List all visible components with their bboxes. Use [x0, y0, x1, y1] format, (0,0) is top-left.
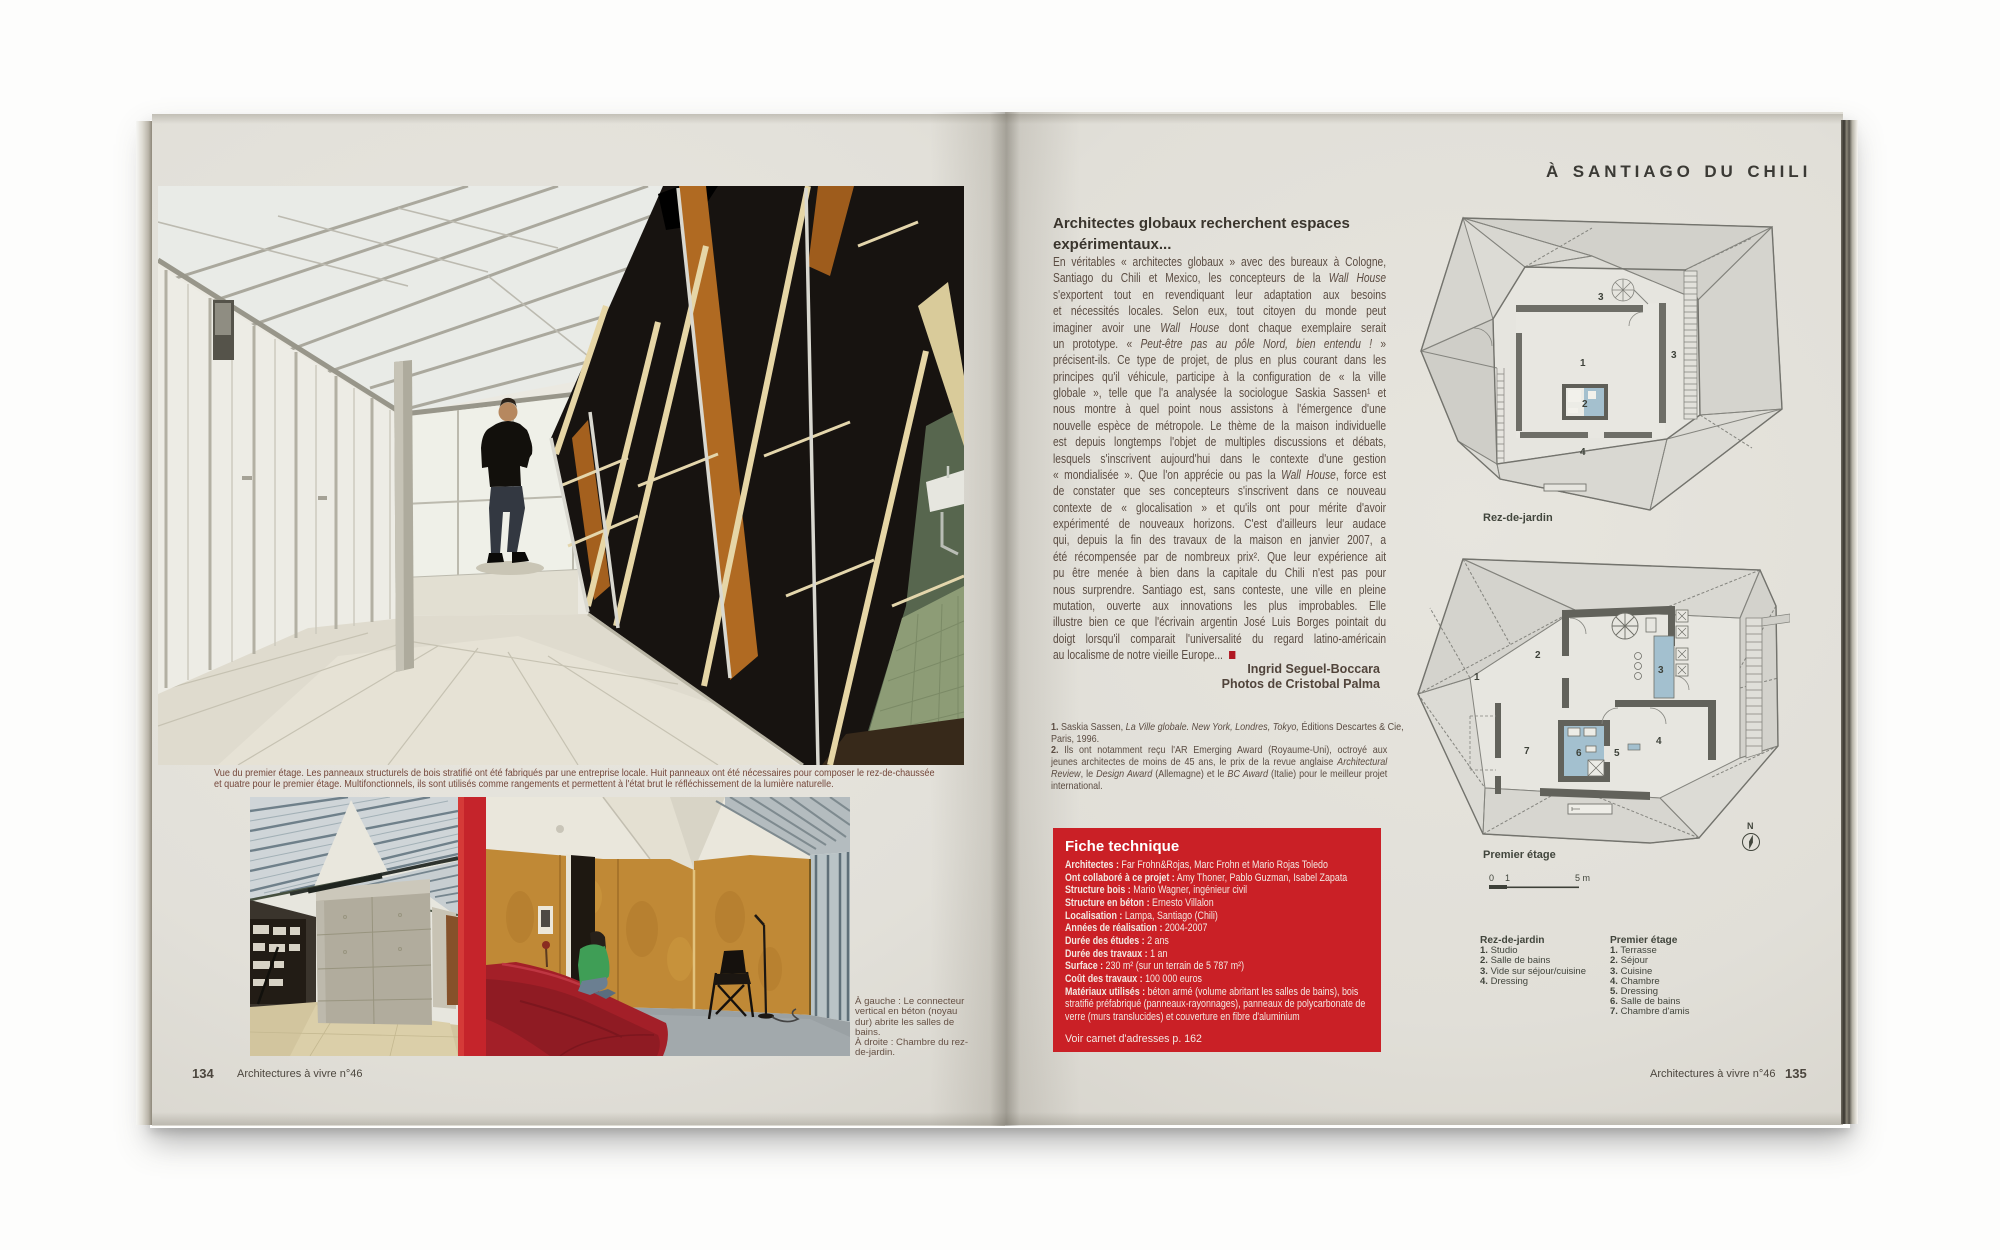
svg-text:5 m: 5 m — [1575, 873, 1590, 883]
svg-text:5: 5 — [1614, 748, 1620, 759]
svg-text:3: 3 — [1598, 292, 1604, 303]
svg-text:1: 1 — [1505, 873, 1510, 883]
svg-text:1: 1 — [1474, 672, 1480, 683]
svg-text:3: 3 — [1671, 350, 1677, 361]
svg-text:N: N — [1747, 821, 1754, 831]
svg-text:3: 3 — [1658, 665, 1664, 676]
svg-text:4: 4 — [1656, 736, 1662, 747]
svg-text:6: 6 — [1576, 748, 1582, 759]
svg-text:1: 1 — [1580, 358, 1586, 369]
svg-text:2: 2 — [1582, 399, 1588, 410]
svg-text:2: 2 — [1535, 650, 1541, 661]
svg-text:0: 0 — [1489, 873, 1494, 883]
svg-text:7: 7 — [1524, 746, 1530, 757]
svg-text:4: 4 — [1580, 447, 1586, 458]
